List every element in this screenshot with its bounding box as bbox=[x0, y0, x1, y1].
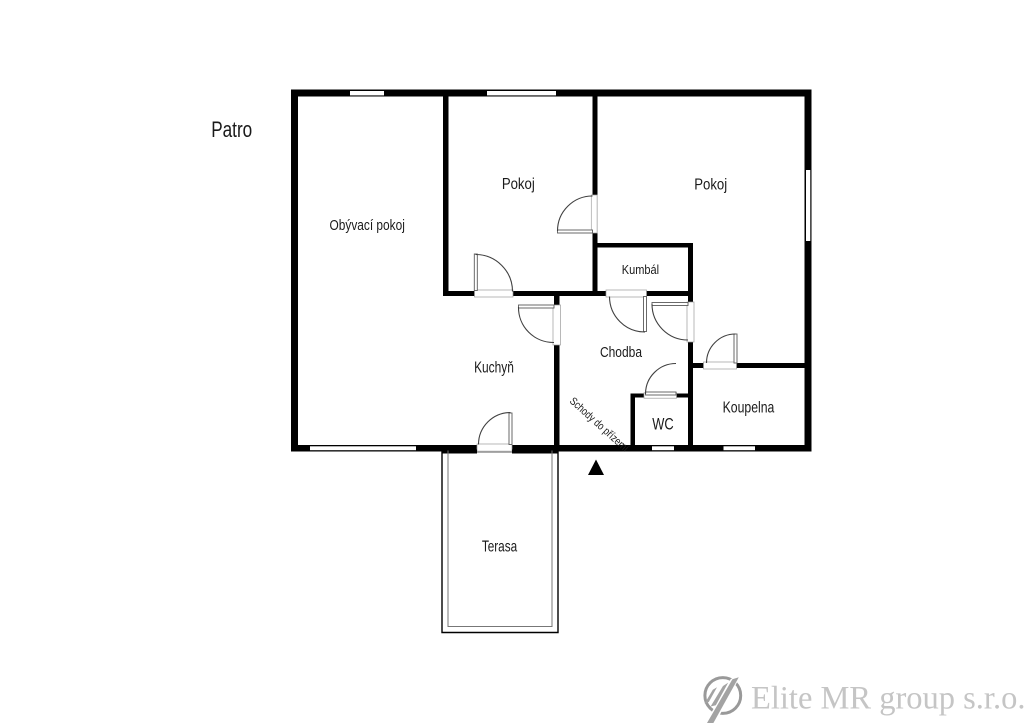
svg-text:Obývací pokoj: Obývací pokoj bbox=[330, 217, 405, 233]
svg-text:Chodba: Chodba bbox=[600, 344, 642, 361]
svg-text:Kumbál: Kumbál bbox=[622, 263, 659, 277]
svg-text:Patro: Patro bbox=[211, 118, 252, 143]
svg-text:Pokoj: Pokoj bbox=[502, 176, 535, 193]
svg-text:Terasa: Terasa bbox=[482, 538, 518, 555]
svg-text:WC: WC bbox=[652, 416, 674, 434]
svg-text:Elite MR group s.r.o.: Elite MR group s.r.o. bbox=[751, 681, 1024, 717]
svg-text:Pokoj: Pokoj bbox=[694, 177, 727, 194]
svg-text:Kuchyň: Kuchyň bbox=[474, 358, 514, 376]
svg-text:Koupelna: Koupelna bbox=[723, 398, 775, 416]
